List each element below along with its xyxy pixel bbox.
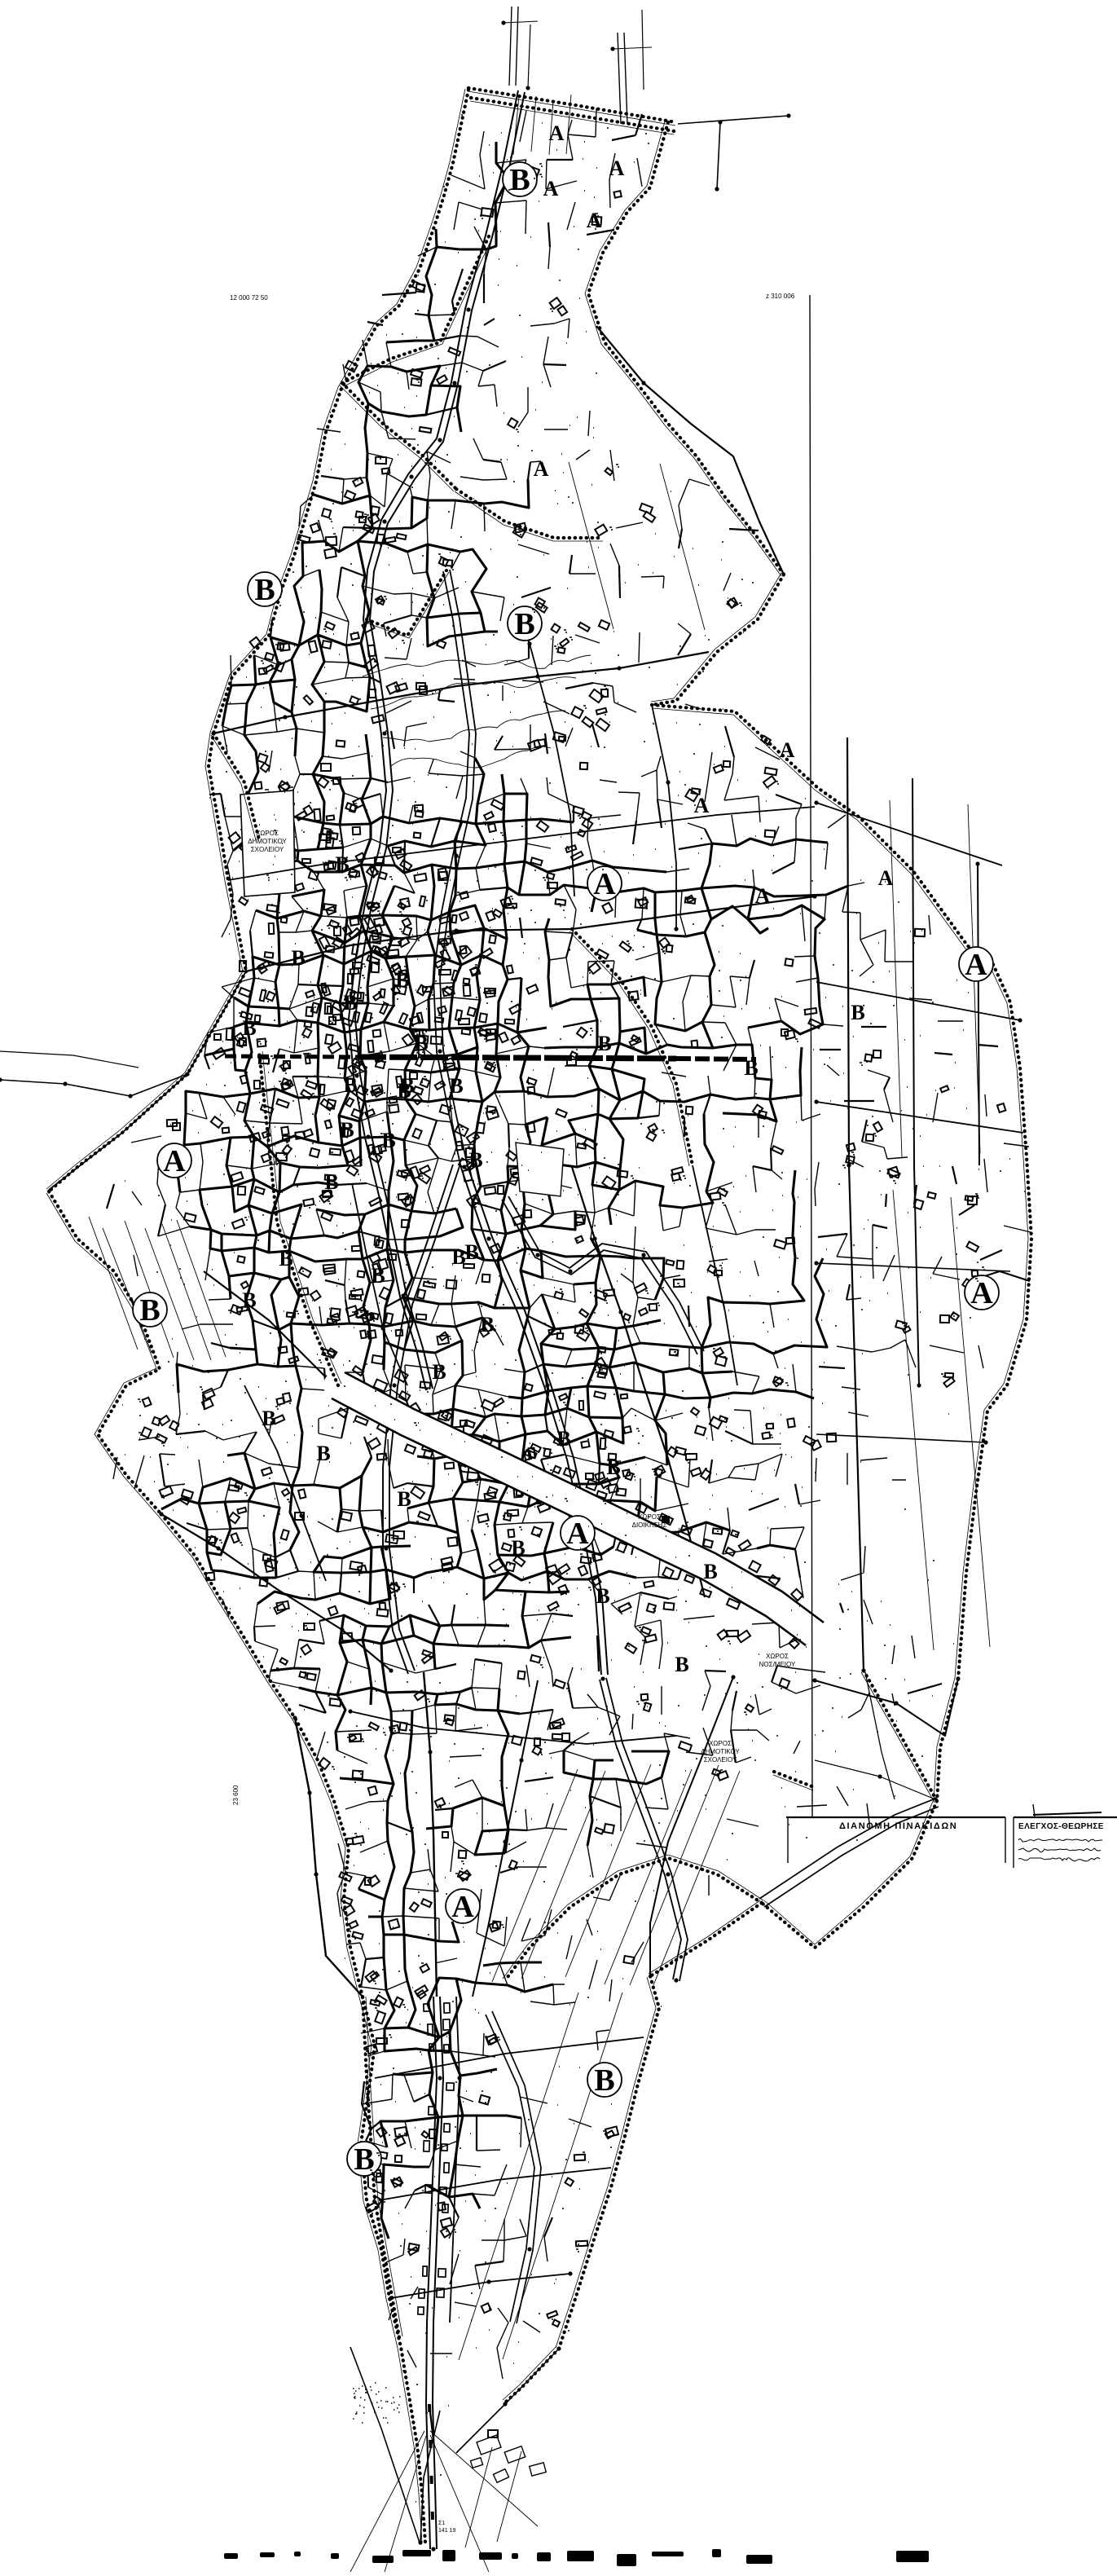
svg-text:ΝΟΣ/ΜΕΙΟΥ: ΝΟΣ/ΜΕΙΟΥ (759, 1661, 796, 1668)
svg-text:B: B (594, 2063, 614, 2098)
svg-text:ΔΗΜΟΤΙΚΟΥ: ΔΗΜΟΤΙΚΟΥ (248, 838, 287, 845)
svg-text:12 000 72 50: 12 000 72 50 (230, 294, 268, 302)
svg-text:141 19: 141 19 (438, 2528, 456, 2534)
svg-text:ΔΙΑΝΟΜΗ ΠΙΝΑΚΙΔΩΝ: ΔΙΑΝΟΜΗ ΠΙΝΑΚΙΔΩΝ (839, 1821, 957, 1831)
svg-text:ΣΧΟΛΕΙΟΥ: ΣΧΟΛΕΙΟΥ (251, 846, 284, 853)
svg-text:B: B (254, 573, 275, 607)
svg-text:ΧΩΡΟΣ: ΧΩΡΟΣ (638, 1513, 661, 1521)
svg-text:A: A (694, 794, 710, 817)
svg-text:Σ1: Σ1 (438, 2521, 445, 2526)
svg-text:B: B (381, 1129, 395, 1152)
svg-text:B: B (703, 1560, 717, 1583)
svg-text:B: B (242, 1288, 256, 1312)
svg-text:ΔΗΜΟΤΙΚΟΥ: ΔΗΜΟΤΙΚΟΥ (701, 1748, 740, 1755)
svg-text:B: B (514, 607, 534, 641)
svg-text:B: B (509, 163, 530, 197)
svg-text:B: B (371, 1264, 385, 1288)
svg-text:B: B (340, 1118, 354, 1142)
svg-text:A: A (970, 1276, 993, 1310)
svg-text:A: A (587, 209, 602, 232)
svg-text:B: B (511, 1536, 525, 1560)
svg-text:B: B (397, 1079, 411, 1103)
svg-text:B: B (414, 1032, 428, 1055)
svg-text:B: B (464, 1240, 478, 1264)
svg-text:B: B (606, 1455, 620, 1479)
svg-text:A: A (451, 1890, 474, 1924)
svg-text:B: B (432, 1360, 446, 1384)
svg-text:A: A (609, 156, 625, 180)
svg-text:A: A (593, 867, 616, 901)
svg-text:B: B (851, 1001, 864, 1024)
svg-text:A: A (163, 1144, 186, 1178)
svg-text:B: B (449, 1074, 463, 1098)
svg-text:B: B (291, 946, 305, 970)
svg-text:A: A (543, 177, 559, 200)
svg-text:B: B (395, 968, 409, 992)
svg-text:B: B (242, 1016, 256, 1040)
svg-text:A: A (566, 1517, 589, 1551)
svg-text:A: A (755, 884, 771, 908)
svg-text:B: B (675, 1653, 688, 1676)
svg-text:A: A (534, 457, 549, 481)
svg-text:B: B (324, 1170, 338, 1194)
svg-text:B: B (397, 1487, 411, 1511)
svg-text:A: A (878, 866, 894, 890)
svg-text:23 600: 23 600 (232, 1785, 240, 1805)
svg-text:B: B (335, 852, 349, 876)
svg-text:B: B (354, 2142, 374, 2177)
svg-text:ΣΧΟΛΕΙΟΥ: ΣΧΟΛΕΙΟΥ (704, 1756, 737, 1764)
svg-text:B: B (262, 1407, 275, 1430)
svg-text:B: B (343, 1073, 357, 1097)
svg-text:ΧΩΡΟΣ: ΧΩΡΟΣ (766, 1653, 789, 1660)
svg-text:A: A (780, 738, 795, 762)
svg-text:ΧΩΡΟΣ: ΧΩΡΟΣ (709, 1740, 732, 1747)
svg-text:B: B (556, 1427, 570, 1451)
svg-text:A: A (965, 948, 987, 982)
svg-text:B: B (139, 1293, 160, 1328)
svg-text:B: B (596, 1584, 609, 1608)
svg-text:B: B (343, 991, 357, 1015)
svg-text:B: B (597, 1032, 611, 1055)
svg-text:ΕΛΕΓΧΟΣ-ΘΕΩΡΗΣΕ: ΕΛΕΓΧΟΣ-ΘΕΩΡΗΣΕ (1018, 1822, 1104, 1831)
svg-text:B: B (468, 1148, 482, 1172)
svg-text:z 310 006: z 310 006 (766, 293, 795, 300)
svg-text:B: B (279, 1247, 292, 1270)
svg-text:B: B (480, 1313, 494, 1336)
svg-text:B: B (744, 1056, 758, 1080)
svg-text:B: B (316, 1442, 330, 1465)
svg-text:B: B (451, 1245, 465, 1269)
svg-text:A: A (549, 121, 565, 145)
